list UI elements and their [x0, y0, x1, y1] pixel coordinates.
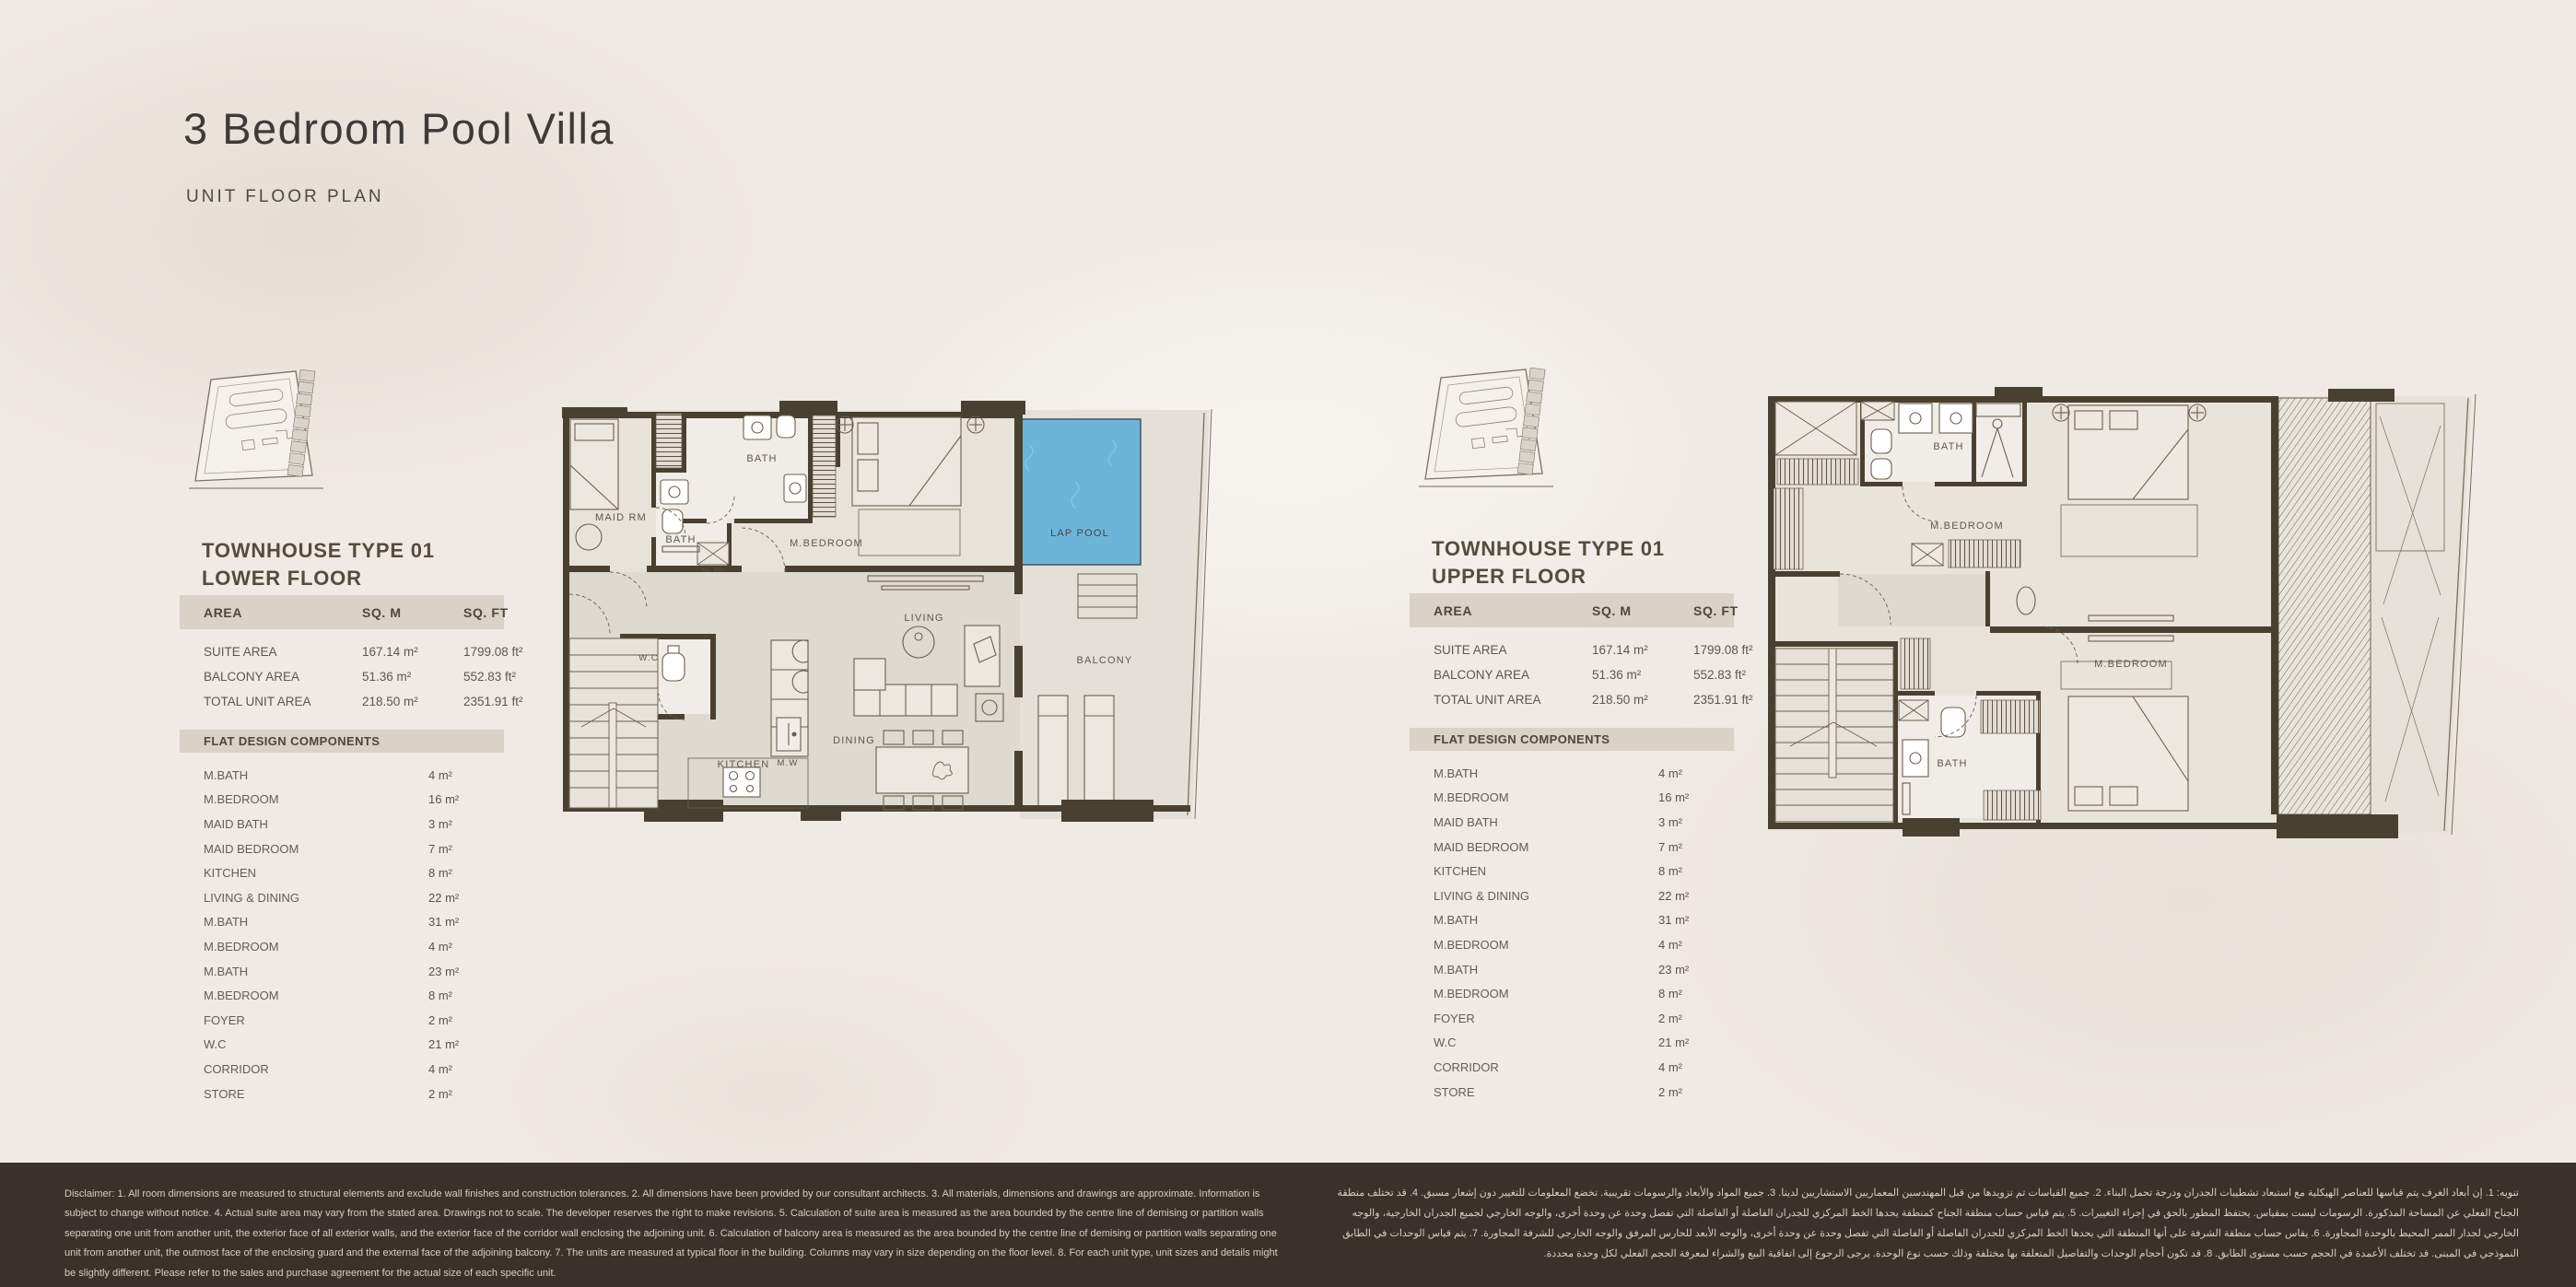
row-sqm: 167.14 m²	[362, 645, 463, 659]
list-item: M.BEDROOM16 m²	[1410, 786, 1734, 811]
comp-value: 2 m²	[428, 1013, 504, 1027]
list-item: MAID BATH3 m²	[1410, 810, 1734, 835]
comp-value: 21 m²	[428, 1037, 504, 1051]
col-sqft: SQ. FT	[463, 605, 528, 620]
list-item: CORRIDOR4 m²	[1410, 1055, 1734, 1080]
comp-value: 4 m²	[428, 768, 504, 782]
comp-value: 4 m²	[1658, 766, 1734, 780]
list-item: M.BATH4 m²	[1410, 761, 1734, 786]
comp-value: 2 m²	[428, 1087, 504, 1101]
table-row: SUITE AREA 167.14 m² 1799.08 ft²	[1410, 638, 1734, 662]
room-label-kitchen: KITCHEN	[718, 759, 770, 770]
comp-label: M.BEDROOM	[204, 989, 428, 1002]
comp-value: 8 m²	[428, 989, 504, 1002]
room-label-mw: M.W	[777, 758, 798, 768]
comp-label: STORE	[204, 1087, 428, 1101]
upper-floor-plan: BATH M.BEDROOM M.BEDROOM BATH	[1764, 385, 2483, 838]
row-label: BALCONY AREA	[1434, 668, 1592, 682]
comp-value: 16 m²	[428, 792, 504, 806]
list-item: M.BEDROOM4 m²	[1410, 932, 1734, 957]
comp-value: 31 m²	[1658, 913, 1734, 927]
table-row: TOTAL UNIT AREA 218.50 m² 2351.91 ft²	[180, 689, 504, 714]
room-label-wc: W.C	[638, 653, 659, 663]
comp-label: M.BEDROOM	[204, 792, 428, 806]
row-sqm: 167.14 m²	[1592, 643, 1693, 657]
comp-value: 23 m²	[428, 965, 504, 978]
row-label: SUITE AREA	[204, 645, 362, 659]
comp-label: M.BEDROOM	[1434, 987, 1658, 1000]
comp-value: 3 m²	[1658, 815, 1734, 829]
comp-value: 4 m²	[428, 1062, 504, 1076]
row-sqm: 51.36 m²	[1592, 668, 1693, 682]
panel-heading-line1: TOWNHOUSE TYPE 01	[202, 537, 435, 565]
lower-floor-plan: LAP POOL BALCONY	[559, 399, 1216, 823]
components-header: FLAT DESIGN COMPONENTS	[180, 730, 504, 753]
disclaimer-arabic: تنويه: 1. إن أبعاد الغرف يتم قياسها للعن…	[1335, 1183, 2519, 1264]
panel-heading-line2: UPPER FLOOR	[1432, 563, 1665, 591]
row-sqft: 1799.08 ft²	[1693, 643, 1758, 657]
comp-label: M.BEDROOM	[1434, 938, 1658, 952]
comp-value: 7 m²	[428, 842, 504, 856]
col-sqm: SQ. M	[362, 605, 463, 620]
comp-label: FOYER	[1434, 1012, 1658, 1025]
row-sqm: 51.36 m²	[362, 670, 463, 684]
list-item: M.BATH31 m²	[180, 910, 504, 935]
louver-strip	[2278, 398, 2371, 814]
list-item: M.BATH31 m²	[1410, 908, 1734, 933]
lower-plan-stairs	[569, 638, 658, 808]
list-item: M.BEDROOM8 m²	[1410, 981, 1734, 1006]
comp-label: M.BATH	[1434, 963, 1658, 977]
list-item: M.BATH4 m²	[180, 763, 504, 788]
comp-value: 4 m²	[1658, 938, 1734, 952]
row-label: BALCONY AREA	[204, 670, 362, 684]
list-item: M.BATH23 m²	[180, 959, 504, 984]
table-row: SUITE AREA 167.14 m² 1799.08 ft²	[180, 639, 504, 664]
list-item: FOYER2 m²	[180, 1008, 504, 1033]
comp-label: LIVING & DINING	[1434, 889, 1658, 903]
list-item: LIVING & DINING22 m²	[180, 885, 504, 910]
comp-value: 8 m²	[1658, 864, 1734, 878]
list-item: CORRIDOR4 m²	[180, 1057, 504, 1082]
list-item: KITCHEN8 m²	[180, 860, 504, 885]
row-sqft: 552.83 ft²	[463, 670, 528, 684]
comp-value: 8 m²	[428, 866, 504, 880]
col-area: AREA	[204, 605, 362, 620]
panel-heading-lower: TOWNHOUSE TYPE 01 LOWER FLOOR	[202, 537, 435, 593]
comp-label: KITCHEN	[204, 866, 428, 880]
row-label: TOTAL UNIT AREA	[1434, 693, 1592, 707]
room-label-mbedroom-bottom: M.BEDROOM	[2094, 659, 2168, 670]
area-table-lower: AREA SQ. M SQ. FT SUITE AREA 167.14 m² 1…	[180, 595, 504, 714]
comp-value: 23 m²	[1658, 963, 1734, 977]
table-row: TOTAL UNIT AREA 218.50 m² 2351.91 ft²	[1410, 687, 1734, 712]
lower-floor-panel: TOWNHOUSE TYPE 01 LOWER FLOOR AREA SQ. M…	[180, 367, 504, 1104]
area-table-header: AREA SQ. M SQ. FT	[1410, 593, 1734, 627]
upper-plan-stairs	[1775, 649, 1893, 822]
list-item: LIVING & DINING22 m²	[1410, 883, 1734, 908]
list-item: W.C21 m²	[180, 1033, 504, 1058]
col-sqm: SQ. M	[1592, 603, 1693, 618]
list-item: M.BATH23 m²	[1410, 957, 1734, 982]
comp-label: LIVING & DINING	[204, 891, 428, 905]
list-item: FOYER2 m²	[1410, 1006, 1734, 1031]
comp-value: 8 m²	[1658, 987, 1734, 1000]
key-plan-lower	[183, 367, 345, 516]
panel-heading-upper: TOWNHOUSE TYPE 01 UPPER FLOOR	[1432, 535, 1665, 591]
comp-value: 7 m²	[1658, 840, 1734, 854]
room-label-bath-top: BATH	[746, 453, 777, 464]
comp-label: FOYER	[204, 1013, 428, 1027]
page-subtitle: UNIT FLOOR PLAN	[186, 187, 384, 207]
tel-box: TEL. BOX	[697, 543, 729, 574]
lap-pool: LAP POOL	[1018, 419, 1141, 565]
comp-value: 31 m²	[428, 915, 504, 929]
page-title: 3 Bedroom Pool Villa	[183, 103, 615, 154]
room-label-tel-box: TEL. BOX	[702, 568, 725, 574]
comp-value: 22 m²	[1658, 889, 1734, 903]
list-item: M.BEDROOM16 m²	[180, 788, 504, 813]
room-label-bath-bottom: BATH	[1937, 758, 1967, 769]
disclaimer-english: Disclaimer: 1. All room dimensions are m…	[64, 1185, 1290, 1283]
list-item: MAID BEDROOM7 m²	[180, 837, 504, 861]
comp-value: 4 m²	[1658, 1060, 1734, 1074]
col-area: AREA	[1434, 603, 1592, 618]
comp-value: 21 m²	[1658, 1035, 1734, 1049]
room-label-mbedroom: M.BEDROOM	[790, 538, 863, 549]
comp-label: MAID BEDROOM	[1434, 840, 1658, 854]
room-label-balcony: BALCONY	[1077, 655, 1133, 666]
row-label: SUITE AREA	[1434, 643, 1592, 657]
comp-label: MAID BATH	[1434, 815, 1658, 829]
room-label-mbedroom-top: M.BEDROOM	[1930, 521, 2004, 532]
comp-label: M.BATH	[204, 915, 428, 929]
comp-label: CORRIDOR	[1434, 1060, 1658, 1074]
area-table-upper: AREA SQ. M SQ. FT SUITE AREA 167.14 m² 1…	[1410, 593, 1734, 712]
room-label-bath-top: BATH	[1933, 441, 1963, 452]
list-item: MAID BEDROOM7 m²	[1410, 835, 1734, 860]
area-table-header: AREA SQ. M SQ. FT	[180, 595, 504, 629]
row-sqft: 2351.91 ft²	[463, 695, 528, 708]
room-label-bath-maid: BATH	[665, 534, 696, 545]
components-list-lower: FLAT DESIGN COMPONENTS M.BATH4 m² M.BEDR…	[180, 730, 504, 1106]
comp-label: M.BATH	[204, 768, 428, 782]
list-item: M.BEDROOM8 m²	[180, 983, 504, 1008]
room-label-lap-pool: LAP POOL	[1050, 528, 1109, 539]
list-item: W.C21 m²	[1410, 1031, 1734, 1056]
col-sqft: SQ. FT	[1693, 603, 1758, 618]
key-plan-upper	[1413, 365, 1575, 514]
comp-label: M.BATH	[1434, 913, 1658, 927]
comp-label: M.BEDROOM	[1434, 790, 1658, 804]
room-label-living: LIVING	[904, 613, 943, 624]
row-label: TOTAL UNIT AREA	[204, 695, 362, 708]
comp-label: CORRIDOR	[204, 1062, 428, 1076]
row-sqft: 1799.08 ft²	[463, 645, 528, 659]
row-sqft: 2351.91 ft²	[1693, 693, 1758, 707]
comp-value: 16 m²	[1658, 790, 1734, 804]
comp-value: 2 m²	[1658, 1085, 1734, 1099]
comp-label: STORE	[1434, 1085, 1658, 1099]
room-label-dining: DINING	[833, 735, 875, 746]
comp-label: MAID BATH	[204, 817, 428, 831]
list-item: STORE2 m²	[1410, 1080, 1734, 1105]
comp-value: 2 m²	[1658, 1012, 1734, 1025]
row-sqft: 552.83 ft²	[1693, 668, 1758, 682]
upper-floor-panel: TOWNHOUSE TYPE 01 UPPER FLOOR AREA SQ. M…	[1410, 365, 1734, 1102]
table-row: BALCONY AREA 51.36 m² 552.83 ft²	[1410, 662, 1734, 687]
table-row: BALCONY AREA 51.36 m² 552.83 ft²	[180, 664, 504, 689]
footer-disclaimer-band: Disclaimer: 1. All room dimensions are m…	[0, 1163, 2576, 1287]
comp-label: W.C	[1434, 1035, 1658, 1049]
room-label-maid-rm: MAID RM	[595, 512, 647, 523]
comp-label: MAID BEDROOM	[204, 842, 428, 856]
comp-value: 3 m²	[428, 817, 504, 831]
panel-heading-line2: LOWER FLOOR	[202, 565, 435, 592]
comp-label: KITCHEN	[1434, 864, 1658, 878]
comp-label: M.BATH	[204, 965, 428, 978]
row-sqm: 218.50 m²	[362, 695, 463, 708]
comp-value: 22 m²	[428, 891, 504, 905]
components-list-upper: FLAT DESIGN COMPONENTS M.BATH4 m² M.BEDR…	[1410, 728, 1734, 1104]
comp-value: 4 m²	[428, 940, 504, 954]
comp-label: M.BATH	[1434, 766, 1658, 780]
comp-label: W.C	[204, 1037, 428, 1051]
panel-heading-line1: TOWNHOUSE TYPE 01	[1432, 535, 1665, 563]
row-sqm: 218.50 m²	[1592, 693, 1693, 707]
list-item: MAID BATH3 m²	[180, 812, 504, 837]
list-item: STORE2 m²	[180, 1082, 504, 1106]
components-header: FLAT DESIGN COMPONENTS	[1410, 728, 1734, 751]
list-item: KITCHEN8 m²	[1410, 859, 1734, 883]
list-item: M.BEDROOM4 m²	[180, 934, 504, 959]
comp-label: M.BEDROOM	[204, 940, 428, 954]
